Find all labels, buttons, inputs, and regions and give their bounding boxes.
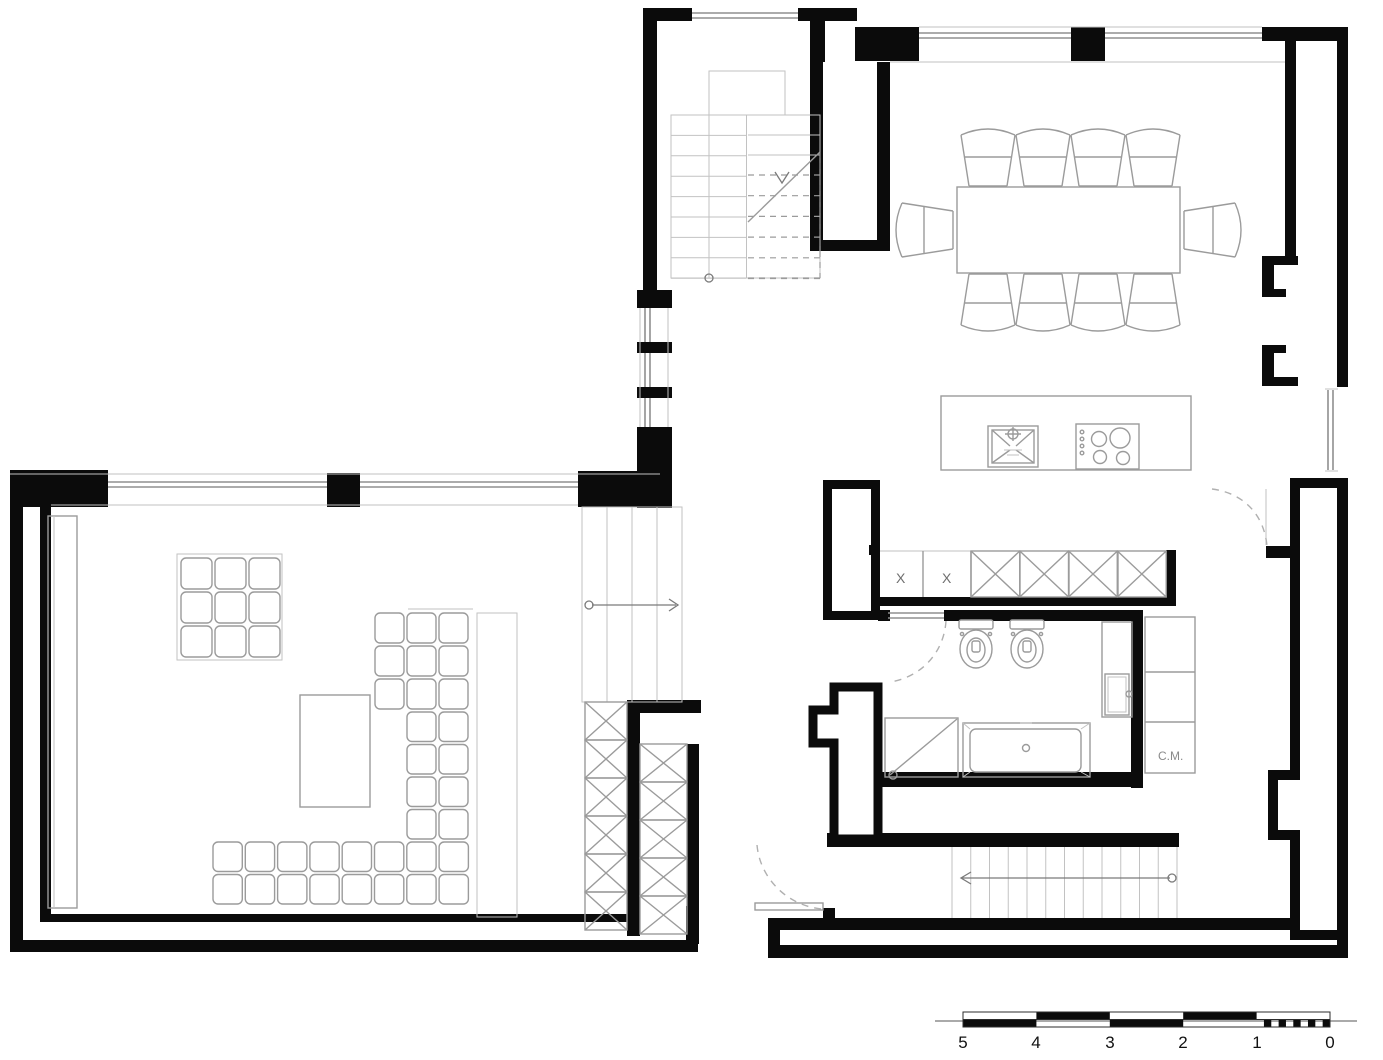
scale-tick-4: 4 [1031,1033,1040,1052]
kitchen [880,396,1191,597]
living-room-furniture [48,516,517,917]
lower-stair-arrow [961,872,1170,884]
scale-tick-0: 0 [1325,1033,1334,1052]
coffee-table [300,695,370,807]
scale-tick-1: 1 [1252,1033,1261,1052]
kitchen-cabinet-row [880,551,1166,597]
cm-label: C.M. [1158,749,1183,763]
passage-door-arc [1212,489,1267,546]
scale-bar: 5 4 3 2 1 0 [935,1012,1357,1052]
steps-direction-arrow [592,599,678,611]
bathroom [885,617,1195,779]
sofa-cushions [181,558,468,904]
dining-set [896,129,1241,331]
floor-plan-sheet: X X C.M. 5 4 3 2 1 0 [0,0,1383,1060]
bathroom-door-leaf [888,613,944,618]
main-staircase [671,71,820,282]
bathtub [963,723,1090,777]
entry-door-leaf [755,903,823,910]
cooktop [1076,424,1139,469]
stair-break-line [748,152,820,222]
cabinet-label-x2: X [942,570,952,586]
kitchen-sink [988,426,1038,467]
washbasin [1102,622,1132,717]
kitchen-island [941,396,1191,470]
toilet [959,620,993,668]
floor-plan-drawing: X X C.M. 5 4 3 2 1 0 [0,0,1383,1060]
entry-door-arc [757,845,822,909]
scale-tick-2: 2 [1178,1033,1187,1052]
scale-tick-3: 3 [1105,1033,1114,1052]
hollow-wall-blocks [813,485,880,840]
shower [885,718,958,779]
bidet [1010,620,1044,668]
stair-direction-arrow [775,172,789,183]
living-steps [582,507,682,702]
bathroom-door-arc [890,621,946,682]
bookshelf [48,516,77,908]
sofa-backboard [477,613,517,917]
dining-table [957,187,1180,273]
scale-tick-5: 5 [958,1033,967,1052]
lower-staircase [952,847,1177,918]
cabinet-label-x1: X [896,570,906,586]
walls-layer [10,8,1348,958]
tub-faucet-icon [1023,745,1030,752]
